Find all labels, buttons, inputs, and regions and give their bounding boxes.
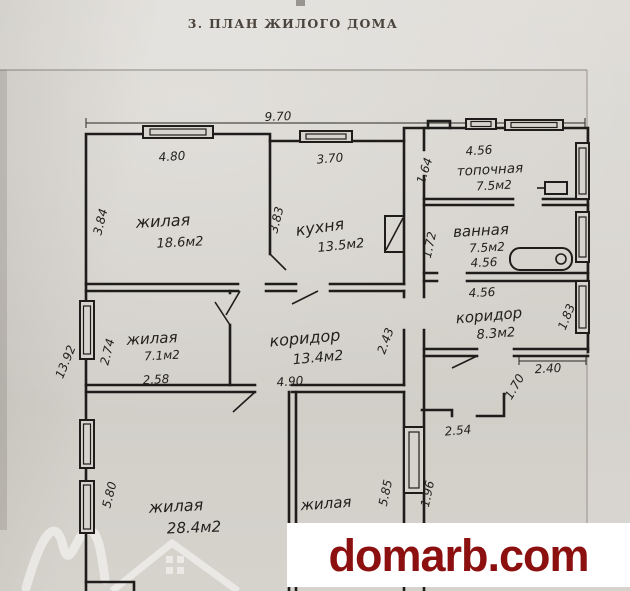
wall-mid-horizontal [86,284,404,291]
room-label: коридор [455,304,523,328]
area-label: 13.5м2 [317,236,365,256]
floor-plan-drawing: 9.70 4.80 3.84 жилая 18.6м2 3.70 3.83 ку… [0,0,630,591]
dimension-label: 1.83 [555,302,578,332]
porch-walls [422,394,504,416]
dimension-label: 5.80 [99,480,119,510]
room-label: жилая [299,493,352,515]
area-label: 18.6м2 [156,234,204,251]
dimension-label: 2.43 [374,326,396,356]
window-icon [576,143,589,199]
room-label: жилая [125,328,178,349]
area-label: 7.1м2 [144,348,180,364]
dimension-label: 3.70 [316,150,344,166]
window-icon [80,420,94,468]
site-watermark-text: domarb.com [328,533,588,578]
room-label: коридор [269,325,341,350]
room-label: кухня [294,214,345,240]
site-watermark: domarb.com [287,523,630,587]
dimension-label: 2.58 [142,372,170,387]
window-icon [80,301,94,359]
room-label: жилая [134,210,191,232]
dimension-label: 4.80 [158,149,186,165]
room-label: ванная [453,220,510,241]
area-label: 28.4м2 [167,518,222,538]
labels: 9.70 4.80 3.84 жилая 18.6м2 3.70 3.83 ку… [53,109,578,537]
window-icon [404,427,424,493]
bathtub-icon [510,248,572,270]
dimension-label: 4.56 [468,285,496,300]
room-label: топочная [456,160,523,179]
dimension-label: 4.56 [470,255,498,270]
dimension-label: 2.40 [534,361,562,376]
dimension-label: 3.84 [90,207,110,236]
dimension-label: 5.85 [376,478,395,507]
window-icon [576,281,589,333]
window-icon [80,481,94,533]
dimension-label: 2.74 [97,337,117,366]
dimension-label: 9.70 [264,109,292,124]
dimension-label: 4.56 [465,143,493,159]
window-icon [143,126,213,138]
window-icon [300,131,352,142]
dimension-label: 1.64 [414,156,436,186]
wall-bath-corridor [424,273,588,281]
page-title: 3. ПЛАН ЖИЛОГО ДОМА [0,16,586,31]
door-leaves [215,254,477,412]
window-icon [466,119,496,129]
wall-corridor-bottom [424,349,588,356]
stove-icon [385,216,404,252]
room-label: жилая [147,495,204,517]
dimension-label: 4.90 [276,374,304,390]
area-label: 7.5м2 [476,178,512,194]
dimension-label: 13.92 [53,343,79,380]
window-icon [505,120,563,130]
window-icon [576,212,589,262]
scanned-floor-plan-photo: 3. ПЛАН ЖИЛОГО ДОМА [0,0,630,591]
boiler-icon [537,182,567,194]
area-label: 13.4м2 [292,348,344,368]
area-label: 7.5м2 [469,240,505,256]
area-label: 8.3м2 [476,325,516,343]
wall-lower-horizontal [86,385,404,392]
wall-boiler-bath [424,199,588,205]
dimension-label: 1.70 [502,371,528,401]
dimension-label: 2.54 [444,422,472,438]
